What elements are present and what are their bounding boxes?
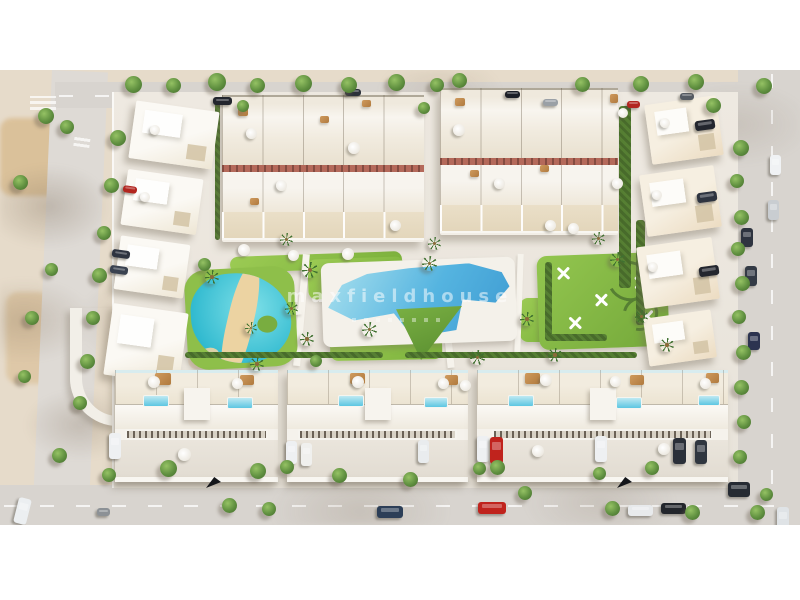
tree <box>575 77 590 92</box>
palm-tree <box>428 237 441 250</box>
tree <box>688 74 704 90</box>
villa-pool <box>143 395 169 407</box>
car <box>109 433 121 459</box>
parasol <box>148 376 160 388</box>
tree <box>633 76 649 92</box>
car <box>627 101 640 108</box>
parasol <box>700 378 711 389</box>
tree <box>198 258 211 271</box>
wood-deck <box>455 98 465 106</box>
wood-deck <box>610 94 618 103</box>
palm-tree <box>635 310 648 323</box>
tree <box>250 78 265 93</box>
tree <box>733 450 747 464</box>
car <box>110 265 129 275</box>
tree <box>645 461 659 475</box>
car <box>748 332 760 350</box>
arrow-marker <box>617 477 632 488</box>
car <box>628 505 653 516</box>
parasol <box>178 448 191 461</box>
tree <box>593 467 606 480</box>
palm-tree <box>470 350 485 365</box>
wood-deck <box>320 116 329 123</box>
wood-deck <box>540 165 549 172</box>
car <box>478 502 506 514</box>
tree <box>756 78 772 94</box>
tree <box>280 460 294 474</box>
car <box>301 443 312 466</box>
car <box>505 91 520 98</box>
tree <box>388 74 405 91</box>
wood-deck <box>470 170 479 177</box>
tree <box>737 415 751 429</box>
tree <box>208 73 226 91</box>
aerial-render-photo: maxfieldhouse <box>0 70 800 525</box>
tree <box>760 488 773 501</box>
parasol <box>140 192 150 202</box>
wood-deck <box>362 100 371 107</box>
parasol <box>232 378 243 389</box>
tree <box>685 505 700 520</box>
tree <box>730 174 744 188</box>
parasol <box>568 223 579 234</box>
car <box>696 191 717 204</box>
parasol <box>610 376 621 387</box>
car <box>477 436 489 462</box>
tree <box>518 486 532 500</box>
car <box>595 436 607 462</box>
parasol <box>532 445 544 457</box>
car <box>694 119 715 132</box>
parasol <box>540 374 552 386</box>
tree <box>160 460 177 477</box>
tree <box>452 73 467 88</box>
parasol <box>150 125 160 135</box>
car <box>695 440 707 464</box>
tree <box>25 311 39 325</box>
villa-pool <box>508 395 534 407</box>
palm-tree <box>520 312 534 326</box>
tree <box>734 210 749 225</box>
parasol <box>652 190 662 200</box>
parasol <box>438 378 449 389</box>
real-estate-render: maxfieldhouse <box>0 0 800 600</box>
palm-tree <box>660 338 674 352</box>
tree <box>97 226 111 240</box>
car <box>377 506 403 518</box>
parasol <box>612 178 623 189</box>
tree <box>418 102 430 114</box>
tree <box>295 75 312 92</box>
tree <box>341 77 357 93</box>
tree <box>736 345 751 360</box>
palm-tree <box>422 256 437 271</box>
tree <box>403 472 418 487</box>
tree <box>45 263 58 276</box>
tree <box>733 140 749 156</box>
palm-tree <box>280 233 293 246</box>
palm-tree <box>205 270 219 284</box>
tree <box>18 370 31 383</box>
car <box>728 482 750 497</box>
car <box>777 507 789 525</box>
arrow-marker <box>206 477 221 488</box>
tree <box>102 468 116 482</box>
tree <box>735 276 750 291</box>
car <box>543 99 558 106</box>
car <box>112 249 131 259</box>
tree <box>104 178 119 193</box>
tree <box>731 242 745 256</box>
tree <box>86 311 100 325</box>
car <box>213 97 232 105</box>
car <box>770 155 781 175</box>
tree <box>92 268 107 283</box>
tree <box>605 501 620 516</box>
parasol <box>352 376 364 388</box>
palm-tree <box>548 348 562 362</box>
villa-pool <box>227 397 253 409</box>
palm-tree <box>610 252 625 267</box>
palm-tree <box>250 357 264 371</box>
parasol <box>618 108 628 118</box>
tree <box>237 100 249 112</box>
tree <box>222 498 237 513</box>
watermark-text: maxfieldhouse <box>287 286 514 307</box>
car <box>418 440 429 463</box>
parasol <box>276 180 287 191</box>
parasol <box>494 178 505 189</box>
car <box>698 265 719 278</box>
palm-tree <box>300 332 314 346</box>
tree <box>60 120 74 134</box>
parasol <box>545 220 556 231</box>
parasol <box>648 262 658 272</box>
tree <box>750 505 765 520</box>
tree <box>332 468 347 483</box>
tree <box>473 462 486 475</box>
car <box>768 200 779 220</box>
parasol <box>348 142 360 154</box>
wood-deck <box>630 375 644 385</box>
tree <box>490 460 505 475</box>
palm-tree <box>245 322 257 334</box>
villa-pool <box>338 395 364 407</box>
car <box>97 508 110 516</box>
parasol <box>246 128 257 139</box>
tree <box>732 310 746 324</box>
tree <box>80 354 95 369</box>
wood-deck <box>250 198 259 205</box>
car <box>680 93 694 100</box>
parasol <box>460 380 471 391</box>
tree <box>310 355 322 367</box>
palm-tree <box>362 322 377 337</box>
tree <box>734 380 749 395</box>
villa-pool <box>698 395 720 406</box>
car <box>661 503 686 514</box>
parasol <box>238 244 250 256</box>
tree <box>250 463 266 479</box>
palm-tree <box>592 232 605 245</box>
tree <box>110 130 126 146</box>
villa-pool <box>616 397 642 409</box>
parasol <box>342 248 354 260</box>
parasol <box>390 220 401 231</box>
tree <box>125 76 142 93</box>
palm-tree <box>302 262 318 278</box>
tree <box>13 175 28 190</box>
car <box>123 185 138 194</box>
watermark-subtext-dots <box>352 318 448 322</box>
tree <box>73 396 87 410</box>
tree <box>262 502 276 516</box>
wood-deck <box>525 373 540 384</box>
tree <box>166 78 181 93</box>
tree <box>430 78 444 92</box>
tree <box>38 108 54 124</box>
car <box>13 497 32 525</box>
car <box>673 438 686 464</box>
parasol <box>660 118 670 128</box>
parasol <box>288 250 299 261</box>
parasol <box>658 443 670 455</box>
parasol <box>453 124 465 136</box>
tree <box>52 448 67 463</box>
villa-pool <box>424 397 448 408</box>
tree <box>706 98 721 113</box>
